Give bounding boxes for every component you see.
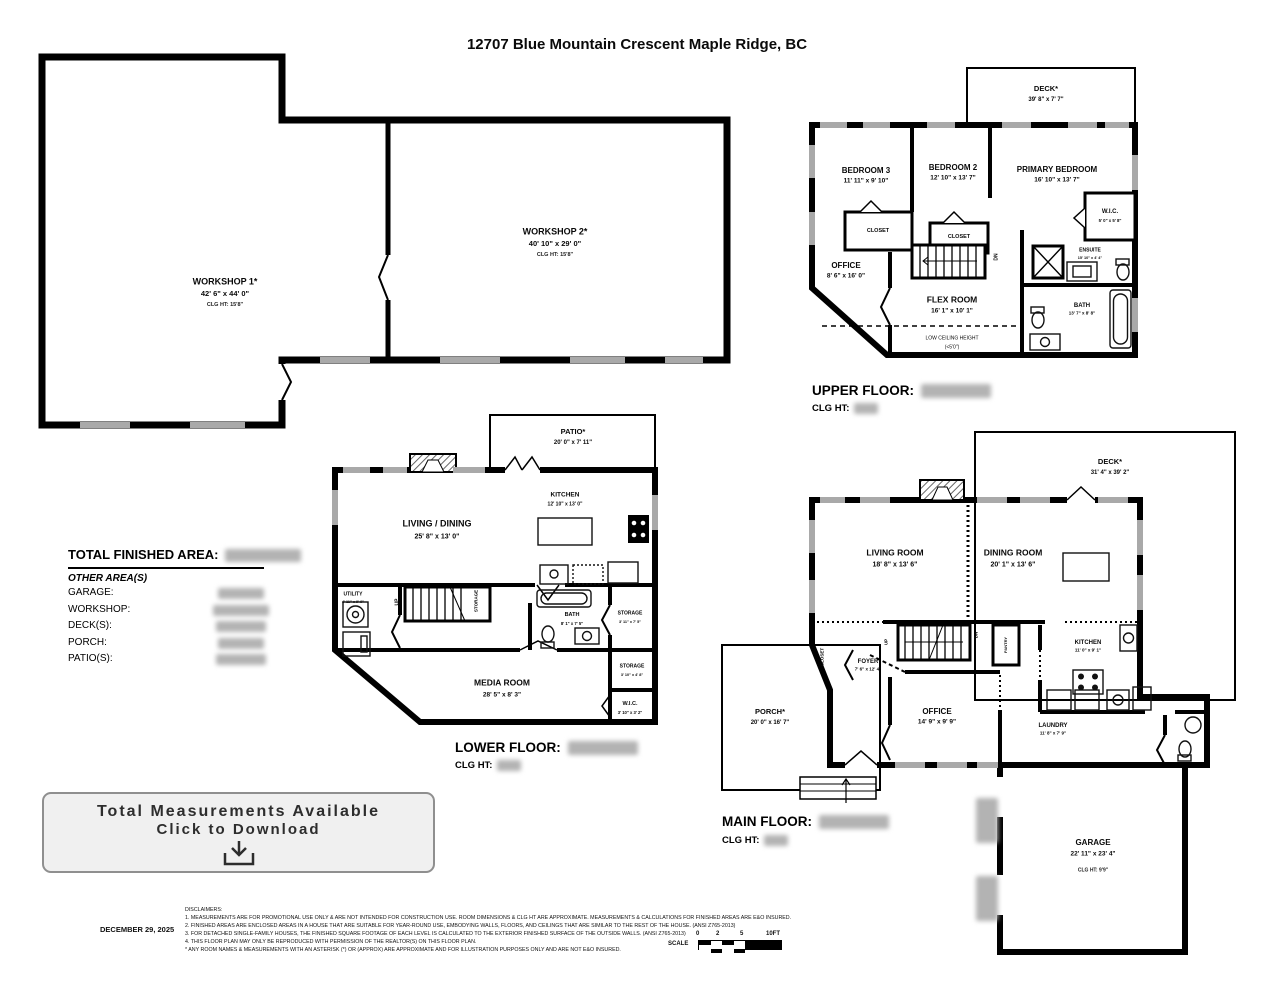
room-label-utility: UTILITY [344, 592, 363, 597]
scale-bar-cell [745, 941, 781, 949]
room-dims-living-room: 18' 8" x 13' 6" [873, 561, 918, 568]
interior-walls [822, 128, 1135, 356]
blurred-annotation [976, 798, 998, 843]
blurred-area-value [218, 588, 264, 599]
scale-bar-cell [699, 941, 711, 945]
summary-row-label: PORCH: [68, 637, 107, 648]
disclaimer-line: 1. MEASUREMENTS ARE FOR PROMOTIONAL USE … [185, 915, 791, 923]
stairs-up-label-main: UP [885, 639, 890, 645]
upper-floor-heading: UPPER FLOOR: [812, 383, 991, 398]
summary-row: WORKSHOP: [68, 604, 328, 621]
scale-bar-cell [734, 949, 746, 953]
room-clg-garage: CLG HT: 9'9" [1078, 868, 1108, 873]
disclaimers-title: DISCLAIMERS: [185, 907, 791, 915]
blurred-clg-value [497, 760, 521, 771]
closet-label-main: CLOSET [821, 648, 826, 666]
room-dims-kitchen-lower: 12' 10" x 13' 0" [548, 502, 583, 507]
room-label-bath-upper: BATH [1074, 303, 1090, 309]
scale-bar [698, 940, 782, 950]
room-dims-kitchen-main: 11' 0" x 9' 1" [1075, 649, 1101, 654]
room-label-porch: PORCH* [755, 708, 785, 716]
total-finished-area-label: TOTAL FINISHED AREA: [68, 547, 218, 562]
summary-row-label: PATIO(S): [68, 653, 113, 664]
room-dims-living-dining: 25' 8" x 13' 0" [415, 533, 460, 540]
summary-row-label: WORKSHOP: [68, 604, 130, 615]
stairs-up-label-lower: UP [395, 599, 400, 606]
low-ceiling-note: LOW CEILING HEIGHT [925, 336, 978, 341]
interior-walls [335, 585, 655, 722]
powder-room-fixture-icons [1178, 717, 1201, 761]
room-clg-workshop1: CLG HT: 15'8" [207, 303, 243, 309]
room-dims-media-room: 28' 5" x 8' 3" [483, 693, 521, 700]
room-label-media-room: MEDIA ROOM [474, 679, 530, 688]
room-clg-workshop2: CLG HT: 15'8" [537, 253, 573, 259]
upper-floor-clg-text: CLG HT: [812, 403, 849, 414]
summary-row: PORCH: [68, 637, 328, 654]
room-dims-storage1: 3' 11" x 7' 5" [619, 620, 641, 624]
room-dims-bath-upper: 13' 7" x 8' 8" [1069, 312, 1095, 317]
closet-label-1: CLOSET [867, 229, 889, 235]
room-dims-flex-room: 16' 1" x 10' 1" [931, 309, 973, 316]
room-dims-laundry: 11' 8" x 7' 9" [1040, 732, 1066, 737]
main-floor-clg: CLG HT: [722, 835, 788, 846]
fireplace-icon [920, 480, 964, 500]
stairs-storage-label: STORAGE [475, 590, 480, 612]
room-label-kitchen-main: KITCHEN [1075, 640, 1102, 646]
scale-bar-cell [722, 949, 734, 953]
disclaimer-line: 2. FINISHED AREAS ARE ENCLOSED AREAS IN … [185, 923, 791, 931]
other-areas-label: OTHER AREA(S) [68, 573, 328, 584]
area-summary-panel: TOTAL FINISHED AREA: OTHER AREA(S) GARAG… [68, 547, 328, 670]
scale-bar-cell [699, 949, 711, 953]
room-label-workshop2: WORKSHOP 2* [523, 227, 588, 236]
download-button-line1: Total Measurements Available [44, 803, 433, 821]
upper-floor-heading-text: UPPER FLOOR: [812, 383, 914, 398]
room-dims-workshop2: 40' 10" x 29' 0" [529, 240, 581, 248]
stairs [898, 625, 970, 660]
room-label-bath-lower: BATH [565, 613, 580, 619]
summary-row-label: DECK(S): [68, 620, 112, 631]
room-dims-office-main: 14' 9" x 9' 9" [918, 720, 956, 727]
room-dims-wic-lower: 3' 10" x 3' 2" [618, 711, 643, 715]
room-label-wic-upper: W.I.C. [1102, 209, 1118, 215]
room-dims-porch: 20' 0" x 16' 7" [751, 720, 790, 726]
room-dims-office-upper: 8' 6" x 16' 0" [827, 274, 865, 281]
blurred-clg-value [854, 403, 878, 414]
scale-bar-cell [734, 941, 746, 945]
main-floor-heading: MAIN FLOOR: [722, 814, 889, 829]
patio-door [505, 457, 540, 470]
room-label-bedroom3: BEDROOM 3 [842, 167, 890, 175]
download-icon [222, 840, 256, 866]
summary-row-label: GARAGE: [68, 587, 114, 598]
lower-floor-heading-text: LOWER FLOOR: [455, 740, 561, 755]
room-label-kitchen-lower: KITCHEN [551, 493, 580, 500]
stairs [912, 245, 985, 278]
floor-plan-page: 12707 Blue Mountain Crescent Maple Ridge… [0, 0, 1270, 1000]
download-button-line2: Click to Download [44, 821, 433, 838]
room-dims-deck-upper: 39' 8" x 7' 7" [1028, 97, 1063, 103]
room-dims-workshop1: 42' 6" x 44' 0" [201, 290, 249, 298]
ensuite-fixture-icons [1067, 259, 1129, 281]
lower-floorplan-drawing [325, 410, 665, 740]
stairs-dn-label-main: DN [975, 632, 980, 639]
blurred-area-value [213, 605, 269, 616]
scale-bar-cell [711, 949, 723, 953]
room-dims-patio: 20' 0" x 7' 11" [554, 440, 592, 446]
stairs-dn-label-upper: DN [994, 253, 999, 260]
room-dims-foyer: 7' 6" x 12' 4" [855, 668, 881, 673]
room-label-deck-main: DECK* [1098, 458, 1122, 466]
upper-floor-clg: CLG HT: [812, 403, 878, 414]
lower-floor-clg: CLG HT: [455, 760, 521, 771]
room-label-living-room: LIVING ROOM [866, 549, 923, 558]
download-measurements-button[interactable]: Total Measurements Available Click to Do… [42, 792, 435, 873]
room-dims-ensuite: 15' 10" x 4' 4" [1078, 256, 1102, 260]
lower-floor-clg-text: CLG HT: [455, 760, 492, 771]
room-label-workshop1: WORKSHOP 1* [193, 277, 258, 286]
blurred-sqft-value [921, 384, 991, 398]
room-label-office-main: OFFICE [922, 708, 951, 716]
disclaimer-line: 3. FOR DETACHED SINGLE-FAMILY HOUSES, TH… [185, 931, 791, 939]
room-dims-utility: 4' 11" x 9' 9" [342, 600, 364, 604]
room-label-patio: PATIO* [561, 428, 586, 436]
room-dims-storage2: 3' 10" x 4' 8" [621, 673, 643, 677]
blurred-sqft-value [819, 815, 889, 829]
room-dims-bedroom3: 11' 11" x 9' 10" [844, 179, 889, 186]
blurred-sqft-value [568, 741, 638, 755]
porch-steps [800, 777, 876, 803]
summary-row: PATIO(S): [68, 653, 328, 670]
room-dims-primary-bedroom: 16' 10" x 13' 7" [1034, 178, 1079, 185]
upper-floorplan-drawing [805, 60, 1145, 370]
kitchen-fixture-icons [538, 515, 649, 584]
shower-icon [1033, 246, 1063, 278]
footer-date: DECEMBER 29, 2025 [100, 924, 174, 935]
summary-row: DECK(S): [68, 620, 328, 637]
closet-label-2: CLOSET [948, 235, 970, 241]
blurred-area-value [216, 621, 266, 632]
scale-bar-cell [711, 941, 723, 945]
room-label-bedroom2: BEDROOM 2 [929, 164, 977, 172]
room-label-primary-bedroom: PRIMARY BEDROOM [1017, 166, 1097, 174]
room-label-living-dining: LIVING / DINING [402, 519, 471, 528]
workshop-floorplan-drawing [35, 50, 735, 435]
scale-bar-cell [722, 941, 734, 945]
room-dims-wic-upper: 5' 0" x 5' 8" [1099, 219, 1122, 224]
room-dims-dining-room: 20' 1" x 13' 6" [991, 561, 1036, 568]
scale-tick-10ft: 10FT [766, 931, 780, 937]
window-markers [335, 470, 655, 530]
main-floor-clg-text: CLG HT: [722, 835, 759, 846]
blurred-annotation [976, 876, 998, 921]
room-label-garage: GARAGE [1075, 839, 1110, 847]
room-dims-bath-lower: 8' 1" x 7' 5" [561, 622, 583, 626]
summary-divider [68, 567, 264, 569]
bath-fixture-icons [1030, 290, 1131, 350]
lower-floor-heading: LOWER FLOOR: [455, 740, 638, 755]
room-label-ensuite: ENSUITE [1079, 248, 1101, 253]
room-dims-garage: 22' 11" x 23' 4" [1070, 852, 1115, 859]
scale-label: SCALE [668, 941, 688, 947]
room-label-wic-lower: W.I.C. [623, 702, 638, 708]
pantry-label: PANTRY [1004, 637, 1008, 653]
main-floor-heading-text: MAIN FLOOR: [722, 814, 812, 829]
room-label-storage2: STORAGE [620, 664, 645, 669]
blurred-clg-value [764, 835, 788, 846]
room-label-storage1: STORAGE [618, 611, 643, 616]
scale-tick-0: 0 [696, 931, 699, 937]
room-label-office-upper: OFFICE [831, 262, 860, 270]
scale-tick-5: 5 [740, 931, 743, 937]
fireplace-icon [410, 454, 456, 472]
blurred-total-value [225, 549, 301, 562]
room-dims-deck-main: 31' 4" x 39' 2" [1091, 470, 1130, 476]
blurred-area-value [218, 638, 264, 649]
room-label-laundry: LAUNDRY [1038, 723, 1067, 729]
room-label-deck-upper: DECK* [1034, 85, 1058, 93]
scale-tick-2: 2 [716, 931, 719, 937]
low-ceiling-note-2: (<5'0") [945, 345, 960, 350]
room-dims-bedroom2: 12' 10" x 13' 7" [930, 176, 975, 183]
summary-row: GARAGE: [68, 587, 328, 604]
blurred-area-value [216, 654, 266, 665]
room-label-foyer: FOYER [858, 659, 879, 665]
utility-fixture-icons [343, 602, 370, 656]
room-label-dining-room: DINING ROOM [984, 549, 1043, 558]
room-label-flex-room: FLEX ROOM [927, 296, 978, 305]
